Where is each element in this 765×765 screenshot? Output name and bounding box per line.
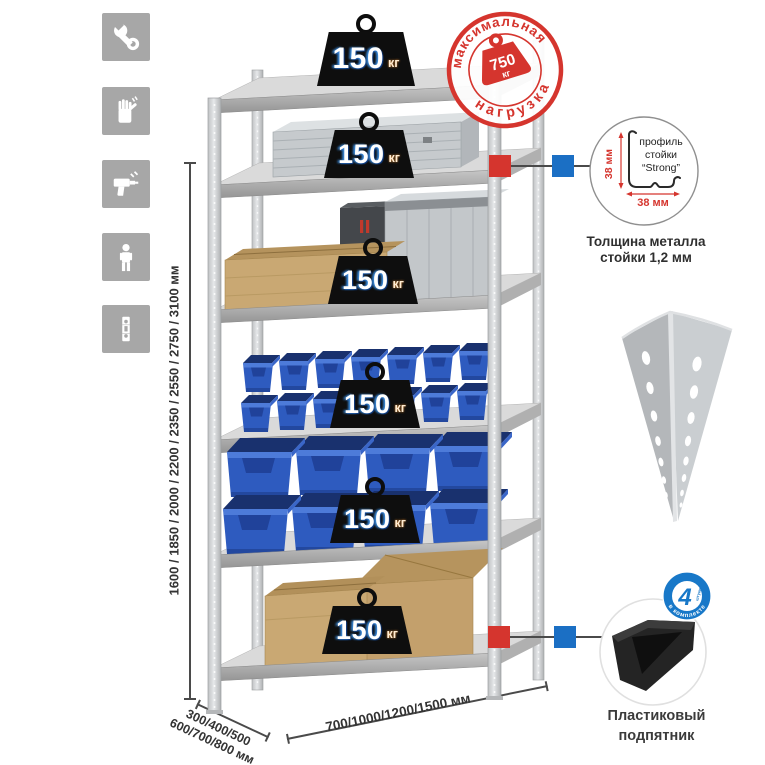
profile-caption: Толщина металла стойки 1,2 мм: [576, 234, 716, 266]
shelf-load-badge-6: 150 кг: [322, 588, 412, 654]
weight-body: 150 кг: [330, 380, 420, 428]
max-load-stamp: максимальная нагрузка 750 кг: [443, 8, 567, 132]
foot-callout-red-marker: [488, 626, 510, 648]
shelving-infographic: 1600 / 1850 / 2000 / 2200 / 2350 / 2550 …: [0, 0, 765, 765]
weight-ring: [365, 477, 385, 497]
width-dim-tick-left: [286, 734, 290, 744]
perforated-post-icon: [102, 305, 150, 353]
weight-ring: [363, 238, 383, 258]
angle-post-photo: [600, 296, 750, 534]
profile-callout-blue-marker: [552, 155, 574, 177]
weight-ring: [357, 588, 377, 608]
post-profile-diagram: 38 мм 38 мм профиль стойки “Strong”: [586, 113, 702, 229]
foot-caption-line2: подпятник: [584, 726, 729, 746]
foot-callout-blue-marker: [554, 626, 576, 648]
load-unit: кг: [387, 627, 398, 641]
work-gloves-icon: [102, 87, 150, 135]
wrench-glyph: [110, 21, 142, 53]
post-glyph: [110, 313, 142, 345]
foot-callout-line: [498, 636, 602, 638]
profile-dim-vertical: 38 мм: [603, 149, 615, 179]
weight-body: 150 кг: [328, 256, 418, 304]
profile-callout-line: [500, 165, 592, 167]
weight-body: 150 кг: [330, 495, 420, 543]
load-unit: кг: [395, 516, 406, 530]
gloves-glyph: [110, 95, 142, 127]
profile-callout-red-marker: [489, 155, 511, 177]
profile-label-2: стойки: [645, 149, 677, 161]
shelf-load-badge-3: 150 кг: [328, 238, 418, 304]
weight-body: 150 кг: [322, 606, 412, 654]
kit-quantity-badge: в комплекте 4 штуки: [661, 570, 713, 622]
load-unit: кг: [388, 56, 399, 70]
drill-glyph: [110, 168, 142, 200]
person-icon: [102, 233, 150, 281]
shelf-load-badge-2: 150 кг: [324, 112, 414, 178]
load-value: 150: [338, 139, 385, 170]
load-unit: кг: [395, 401, 406, 415]
profile-label-1: профиль: [639, 136, 683, 148]
height-dimension-label: 1600 / 1850 / 2000 / 2200 / 2350 / 2550 …: [167, 151, 182, 711]
height-dimension-line: [189, 163, 191, 700]
shelf-load-badge-5: 150 кг: [330, 477, 420, 543]
weight-ring: [356, 14, 376, 34]
wrench-icon: [102, 13, 150, 61]
kit-badge-number: 4: [677, 584, 691, 611]
profile-caption-line2: стойки 1,2 мм: [576, 250, 716, 266]
weight-body: 150 кг: [317, 32, 415, 86]
weight-ring: [359, 112, 379, 132]
drill-icon: [102, 160, 150, 208]
load-value: 150: [336, 615, 383, 646]
shelf-load-badge-4: 150 кг: [330, 362, 420, 428]
profile-label-3: “Strong”: [642, 162, 680, 174]
load-value: 150: [332, 42, 384, 76]
depth-dim-tick-right: [265, 732, 271, 742]
profile-dim-horizontal: 38 мм: [637, 197, 669, 209]
profile-caption-line1: Толщина металла: [576, 234, 716, 250]
load-unit: кг: [393, 277, 404, 291]
weight-ring: [365, 362, 385, 382]
load-value: 150: [344, 504, 391, 535]
weight-body: 150 кг: [324, 130, 414, 178]
load-unit: кг: [389, 151, 400, 165]
shelf-load-badge-1: 150 кг: [317, 14, 415, 86]
load-value: 150: [342, 265, 389, 296]
person-glyph: [110, 241, 142, 273]
load-value: 150: [344, 389, 391, 420]
